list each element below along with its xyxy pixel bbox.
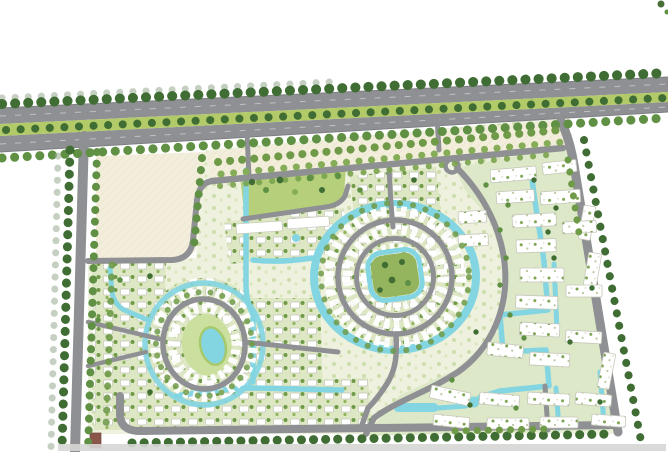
tree-row-south-parking <box>455 429 545 431</box>
apartment-building <box>529 352 570 367</box>
tree <box>117 277 123 283</box>
tree <box>307 175 314 182</box>
tree <box>399 259 405 265</box>
image-bottom-band <box>58 444 666 451</box>
ring-central-park <box>366 248 424 303</box>
tree <box>147 273 153 279</box>
apartment-building <box>591 414 626 427</box>
tree <box>551 255 556 260</box>
canal-link-west <box>253 258 312 261</box>
tree <box>497 282 502 287</box>
apartment-building <box>519 322 560 337</box>
tree <box>503 255 508 260</box>
apartment-building <box>512 213 557 228</box>
tree <box>377 287 383 293</box>
tree <box>263 187 269 193</box>
apartment-building <box>496 189 535 204</box>
pool-channel <box>438 406 466 408</box>
tree <box>658 1 665 8</box>
tree <box>597 399 602 404</box>
tree <box>277 177 284 184</box>
tree <box>357 187 363 193</box>
apartment-building <box>516 239 556 253</box>
apartment-building <box>566 285 602 297</box>
tree <box>483 182 488 187</box>
tree <box>513 405 518 410</box>
tree <box>507 312 512 317</box>
tree <box>467 402 472 407</box>
tree <box>505 202 510 207</box>
tree <box>411 177 417 183</box>
tree <box>382 262 388 268</box>
apartment-building <box>527 392 570 406</box>
tree <box>567 339 572 344</box>
tree <box>319 187 325 193</box>
tree <box>147 389 153 395</box>
tree <box>95 317 101 323</box>
tree <box>531 177 536 182</box>
apartment-building <box>575 392 612 407</box>
apartment-building <box>458 210 487 224</box>
tree <box>449 377 454 382</box>
tree <box>292 189 298 195</box>
apartment-building <box>520 268 564 282</box>
tree <box>335 173 341 179</box>
tree <box>405 280 411 286</box>
vacant-sand-parcel <box>96 152 206 258</box>
site-plan-drawing <box>0 0 668 452</box>
tree <box>589 285 594 290</box>
masterplan-canvas <box>0 0 668 452</box>
tree <box>389 277 396 284</box>
ring-park-lawn <box>369 251 420 299</box>
tree <box>545 229 550 234</box>
tree <box>473 329 478 334</box>
tree <box>497 227 502 232</box>
tree <box>521 335 526 340</box>
tree <box>249 179 255 185</box>
park-pond <box>292 234 300 242</box>
tree <box>553 205 558 210</box>
apartment-building <box>516 295 558 309</box>
